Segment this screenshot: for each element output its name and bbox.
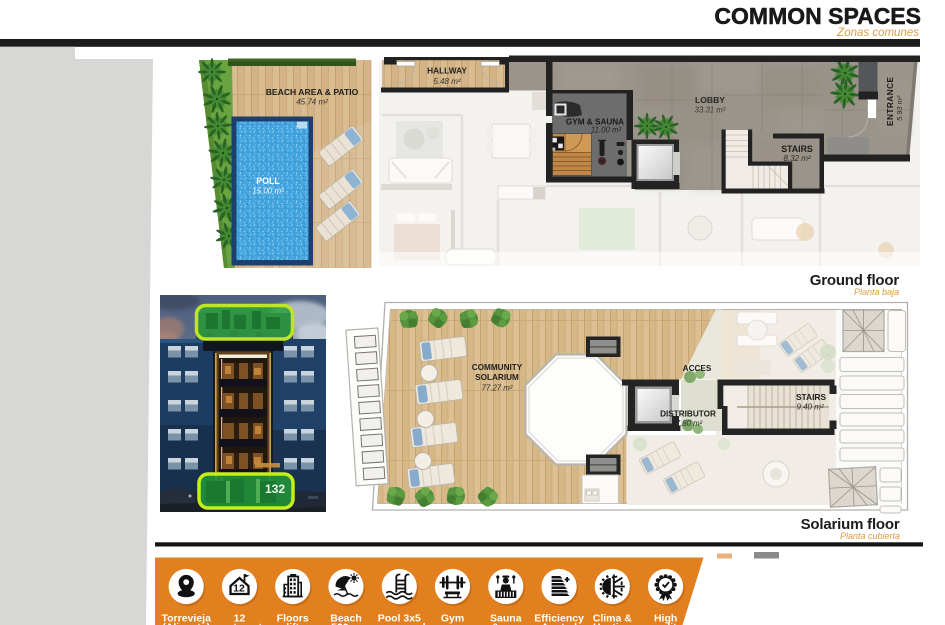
svg-text:lift: lift	[286, 622, 299, 625]
svg-text:apartments: apartments	[211, 622, 268, 625]
svg-text:STAIRS: STAIRS	[796, 392, 827, 402]
svg-text:ACCES: ACCES	[683, 364, 712, 373]
svg-text:12: 12	[233, 583, 245, 595]
svg-text:Planta cubierta: Planta cubierta	[840, 531, 900, 541]
svg-text:ENTRANCE: ENTRANCE	[886, 76, 895, 126]
svg-text:9.40 m²: 9.40 m²	[796, 403, 823, 412]
svg-text:11.00 m²: 11.00 m²	[591, 126, 622, 135]
svg-text:5.48 m²: 5.48 m²	[433, 77, 460, 86]
svg-text:33.31 m²: 33.31 m²	[695, 106, 726, 115]
svg-text:& spa: & spa	[492, 622, 521, 625]
svg-text:500 m: 500 m	[331, 622, 361, 625]
svg-text:Planta baja: Planta baja	[854, 287, 899, 297]
svg-text:POLL: POLL	[256, 176, 280, 186]
svg-text:communal: communal	[373, 622, 426, 625]
svg-text:DISTRIBUTOR: DISTRIBUTOR	[660, 410, 716, 419]
svg-text:COMMON SPACES: COMMON SPACES	[714, 3, 921, 29]
svg-text:A rated: A rated	[541, 622, 577, 625]
svg-text:Zonas comunes: Zonas comunes	[836, 27, 919, 39]
svg-text:77.27 m²: 77.27 m²	[482, 384, 513, 393]
svg-text:SOLARIUM: SOLARIUM	[475, 373, 519, 382]
svg-text:area: area	[442, 622, 464, 625]
svg-text:(Alicante): (Alicante)	[162, 622, 210, 625]
svg-text:STAIRS: STAIRS	[781, 144, 813, 154]
svg-text:LOBBY: LOBBY	[695, 95, 725, 105]
svg-text:45.74 m²: 45.74 m²	[296, 98, 328, 107]
svg-text:Heating: Heating	[593, 622, 632, 625]
svg-text:5.93 m²: 5.93 m²	[895, 95, 904, 121]
svg-text:HALLWAY: HALLWAY	[427, 66, 467, 76]
svg-text:15.00 m²: 15.00 m²	[252, 187, 284, 196]
svg-text:132: 132	[265, 482, 285, 496]
svg-text:quality: quality	[649, 622, 683, 625]
svg-text:COMMUNITY: COMMUNITY	[472, 363, 523, 372]
svg-text:BEACH AREA & PATIO: BEACH AREA & PATIO	[266, 87, 359, 97]
